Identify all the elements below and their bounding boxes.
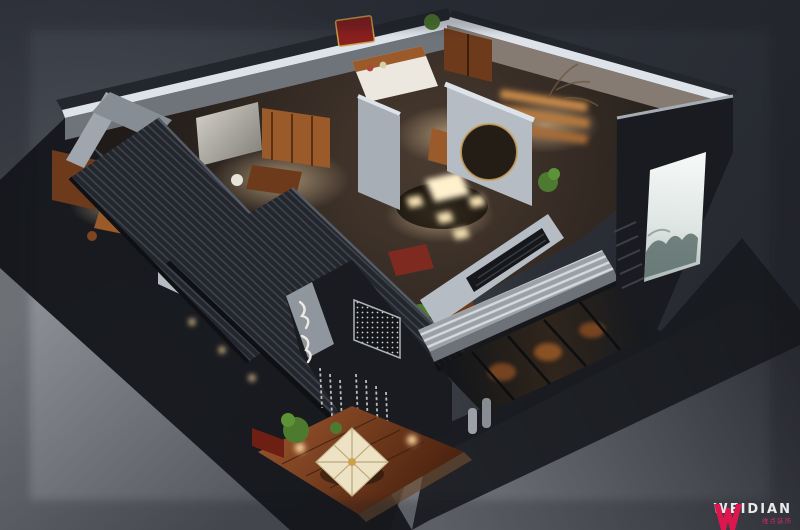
brand-subtext: 维点装饰 [762, 518, 792, 525]
brand-monogram-icon [713, 503, 743, 530]
bonsai [330, 422, 342, 434]
study-chair [231, 174, 243, 186]
pillar-wall [358, 96, 400, 210]
render-scene [0, 0, 800, 530]
watermark-logo: WEIDIAN 维点装饰 [713, 503, 792, 525]
render-stage: WEIDIAN 维点装饰 [0, 0, 800, 530]
